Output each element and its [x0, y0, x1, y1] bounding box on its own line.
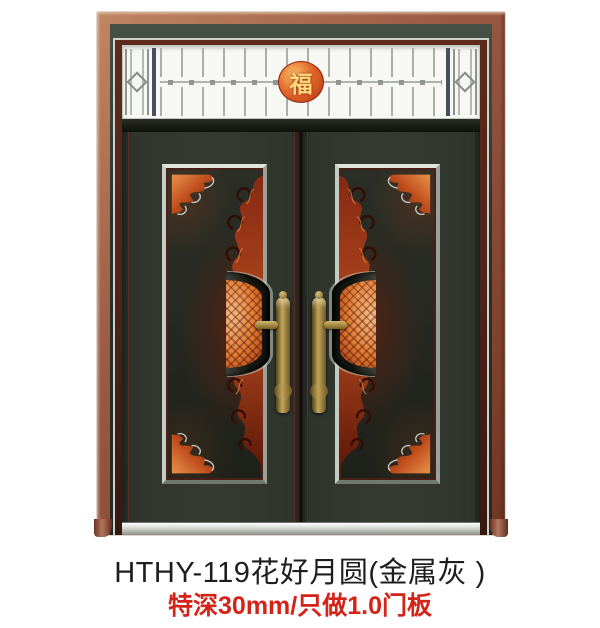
door-panel-left — [162, 164, 267, 484]
corner-ornament-icon — [170, 426, 226, 476]
door-handle-left — [276, 297, 290, 413]
door-handle-right — [312, 297, 326, 413]
product-subtitle: 特深30mm/只做1.0门板 — [0, 592, 600, 620]
panel-decor-left — [166, 168, 263, 480]
transom-window: 福 — [122, 45, 480, 119]
threshold-sill — [122, 522, 480, 535]
fu-character: 福 — [290, 65, 313, 99]
outer-copper-frame: 福 — [97, 12, 505, 535]
transom-end-ornament-right — [453, 49, 477, 115]
handle-plate — [312, 297, 326, 413]
product-photo-door: 福 — [97, 12, 505, 535]
transom-bar-right — [446, 48, 450, 116]
fu-medallion-icon: 福 — [278, 61, 324, 103]
dark-frame-band: 福 — [110, 24, 492, 535]
double-door-leaves — [122, 132, 480, 522]
product-title: HTHY-119花好月圆(金属灰 ) — [0, 557, 600, 590]
door-center-divider — [299, 132, 304, 522]
silver-frame-line: 福 — [113, 38, 489, 535]
maroon-jamb-frame: 福 — [115, 40, 487, 535]
handle-lever — [324, 321, 347, 329]
panel-decor-right — [339, 168, 436, 480]
transom-bar-left — [152, 48, 156, 116]
transom-end-ornament-left — [125, 49, 149, 115]
handle-lever — [255, 321, 278, 329]
corner-ornament-icon — [376, 172, 432, 222]
corner-ornament-icon — [170, 172, 226, 222]
corner-ornament-icon — [376, 426, 432, 476]
door-header-bar — [122, 119, 480, 132]
door-panel-right — [335, 164, 440, 484]
frame-foot-right — [490, 519, 508, 537]
product-caption: HTHY-119花好月圆(金属灰 ) 特深30mm/只做1.0门板 — [0, 557, 600, 620]
door-assembly: 福 — [122, 45, 480, 535]
handle-plate — [276, 297, 290, 413]
